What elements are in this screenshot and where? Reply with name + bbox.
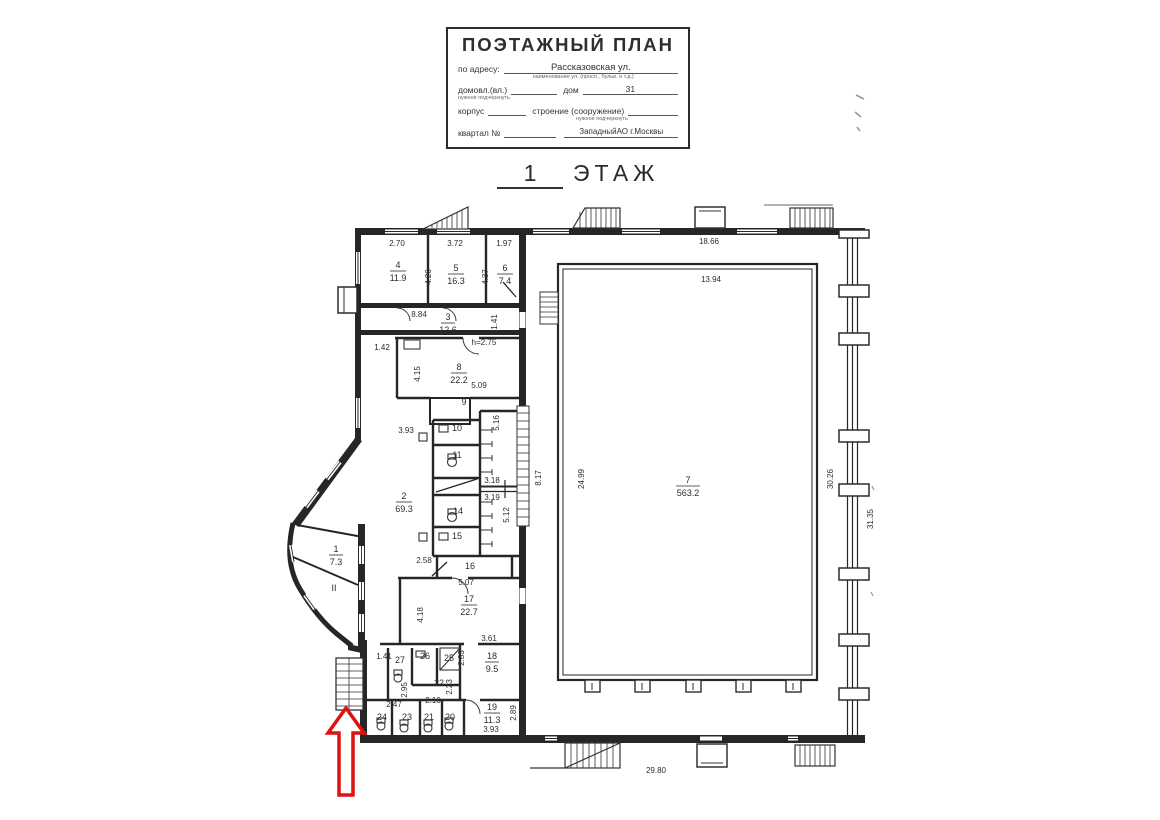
dim-3-18: 3.18 [484,476,500,485]
dim-5-09: 5.09 [471,381,487,390]
hall-column-tabs [585,680,801,692]
room-6-label: 67.4 [497,263,513,286]
room-15-number: 15 [452,531,462,541]
dim-h-2-75: h=2.75 [472,338,497,347]
dim-4-37: 4.37 [481,269,490,285]
room-17-label: 1722.7 [460,594,478,617]
dim-4-26: 4.26 [424,269,433,285]
room-23-number: 23 [402,712,412,722]
svg-text:563.2: 563.2 [677,488,700,498]
dim-24-99: 24.99 [577,468,586,489]
room-24-number: 24 [377,712,387,722]
dim-1-42: 1.42 [374,343,390,352]
room-27-number: 27 [395,655,405,665]
room-11-number: 11 [452,450,461,460]
svg-text:7: 7 [685,475,690,485]
dim-13-94: 13.94 [701,275,722,284]
scanned-floor-plan-page: ПОЭТАЖНЫЙ ПЛАН по адресу: Рассказовская … [0,0,1160,820]
room-19-label: 1911.3 [484,702,501,725]
svg-text:7.4: 7.4 [499,276,512,286]
room-21-number: 21 [424,712,434,722]
pilasters [839,230,869,700]
room-10-number: 10 [452,423,462,433]
svg-text:2: 2 [401,491,406,501]
hall-structure [558,235,858,736]
dim-2-47: 2.47 [386,700,402,709]
room-22-number: 22 [434,678,444,688]
dim-2-89: 2.89 [509,705,518,721]
entrance-arrow [328,708,364,795]
room-5-label: 516.3 [447,263,465,286]
svg-text:7.3: 7.3 [330,557,343,567]
room-16-number: 16 [465,561,475,571]
dim-2-23: 2.23 [445,679,454,695]
svg-text:16.3: 16.3 [447,276,465,286]
svg-text:12.6: 12.6 [439,325,457,335]
svg-text:4: 4 [395,260,400,270]
floor-plan-drawing: 411.9 516.3 67.4 312.6 822.2 269.3 17.3 … [0,0,1160,820]
dim-3-61: 3.61 [481,634,497,643]
dim-2-95: 2.95 [400,682,409,698]
zone-roman-2: II [331,583,336,593]
room-4-label: 411.9 [390,260,407,283]
svg-text:1: 1 [333,544,338,554]
svg-text:18: 18 [487,651,497,661]
room-9-number: 9 [461,397,466,407]
dim-8-17: 8.17 [534,470,543,486]
dim-29-80: 29.80 [646,766,667,775]
dim-18-66: 18.66 [699,237,720,246]
dim-2-70: 2.70 [389,239,405,248]
dim-1-97: 1.97 [496,239,512,248]
svg-text:5: 5 [453,263,458,273]
svg-text:6: 6 [502,263,507,273]
room-2-label: 269.3 [395,491,413,514]
svg-text:11.3: 11.3 [484,715,501,725]
svg-text:11.9: 11.9 [390,273,407,283]
room-14-number: 14 [453,506,463,516]
room-1-label: 17.3 [329,544,343,567]
svg-text:3: 3 [445,312,450,322]
svg-text:8: 8 [456,362,461,372]
room-26-number: 26 [420,651,430,661]
dim-2-83: 2.83 [457,650,466,666]
wall-shaft [338,287,357,313]
dim-3-72: 3.72 [447,239,463,248]
room-20-number: 20 [445,712,455,722]
room-8-label: 822.2 [450,362,468,385]
dim-5-07: 5.07 [458,578,474,587]
dim-2-58: 2.58 [416,556,432,565]
room-7-label: 7563.2 [676,475,700,498]
svg-text:69.3: 69.3 [395,504,413,514]
dim-4-15: 4.15 [413,366,422,382]
dim-8-84: 8.84 [411,310,427,319]
svg-text:22.2: 22.2 [450,375,468,385]
svg-text:22.7: 22.7 [460,607,478,617]
svg-text:17: 17 [464,594,474,604]
bay-wall [290,523,352,646]
dim-31-35: 31.35 [866,508,875,529]
room-3-label: 312.6 [439,312,457,335]
dim-3-19: 3.19 [484,493,500,502]
dim-30-26: 30.26 [826,468,835,489]
dim-1-41-a: 1.41 [490,314,499,330]
dim-3-93-b: 3.93 [483,725,499,734]
dim-3-93-a: 3.93 [398,426,414,435]
svg-text:19: 19 [487,702,497,712]
dim-1-41-b: 1.41 [376,652,392,661]
room-25-number: 25 [444,653,454,663]
dim-4-18: 4.18 [416,607,425,623]
dim-2-10: 2.10 [425,696,441,705]
dim-5-12: 5.12 [502,507,511,523]
dim-5-16: 5.16 [492,415,501,431]
room-18-label: 189.5 [485,651,499,674]
svg-text:9.5: 9.5 [486,664,499,674]
